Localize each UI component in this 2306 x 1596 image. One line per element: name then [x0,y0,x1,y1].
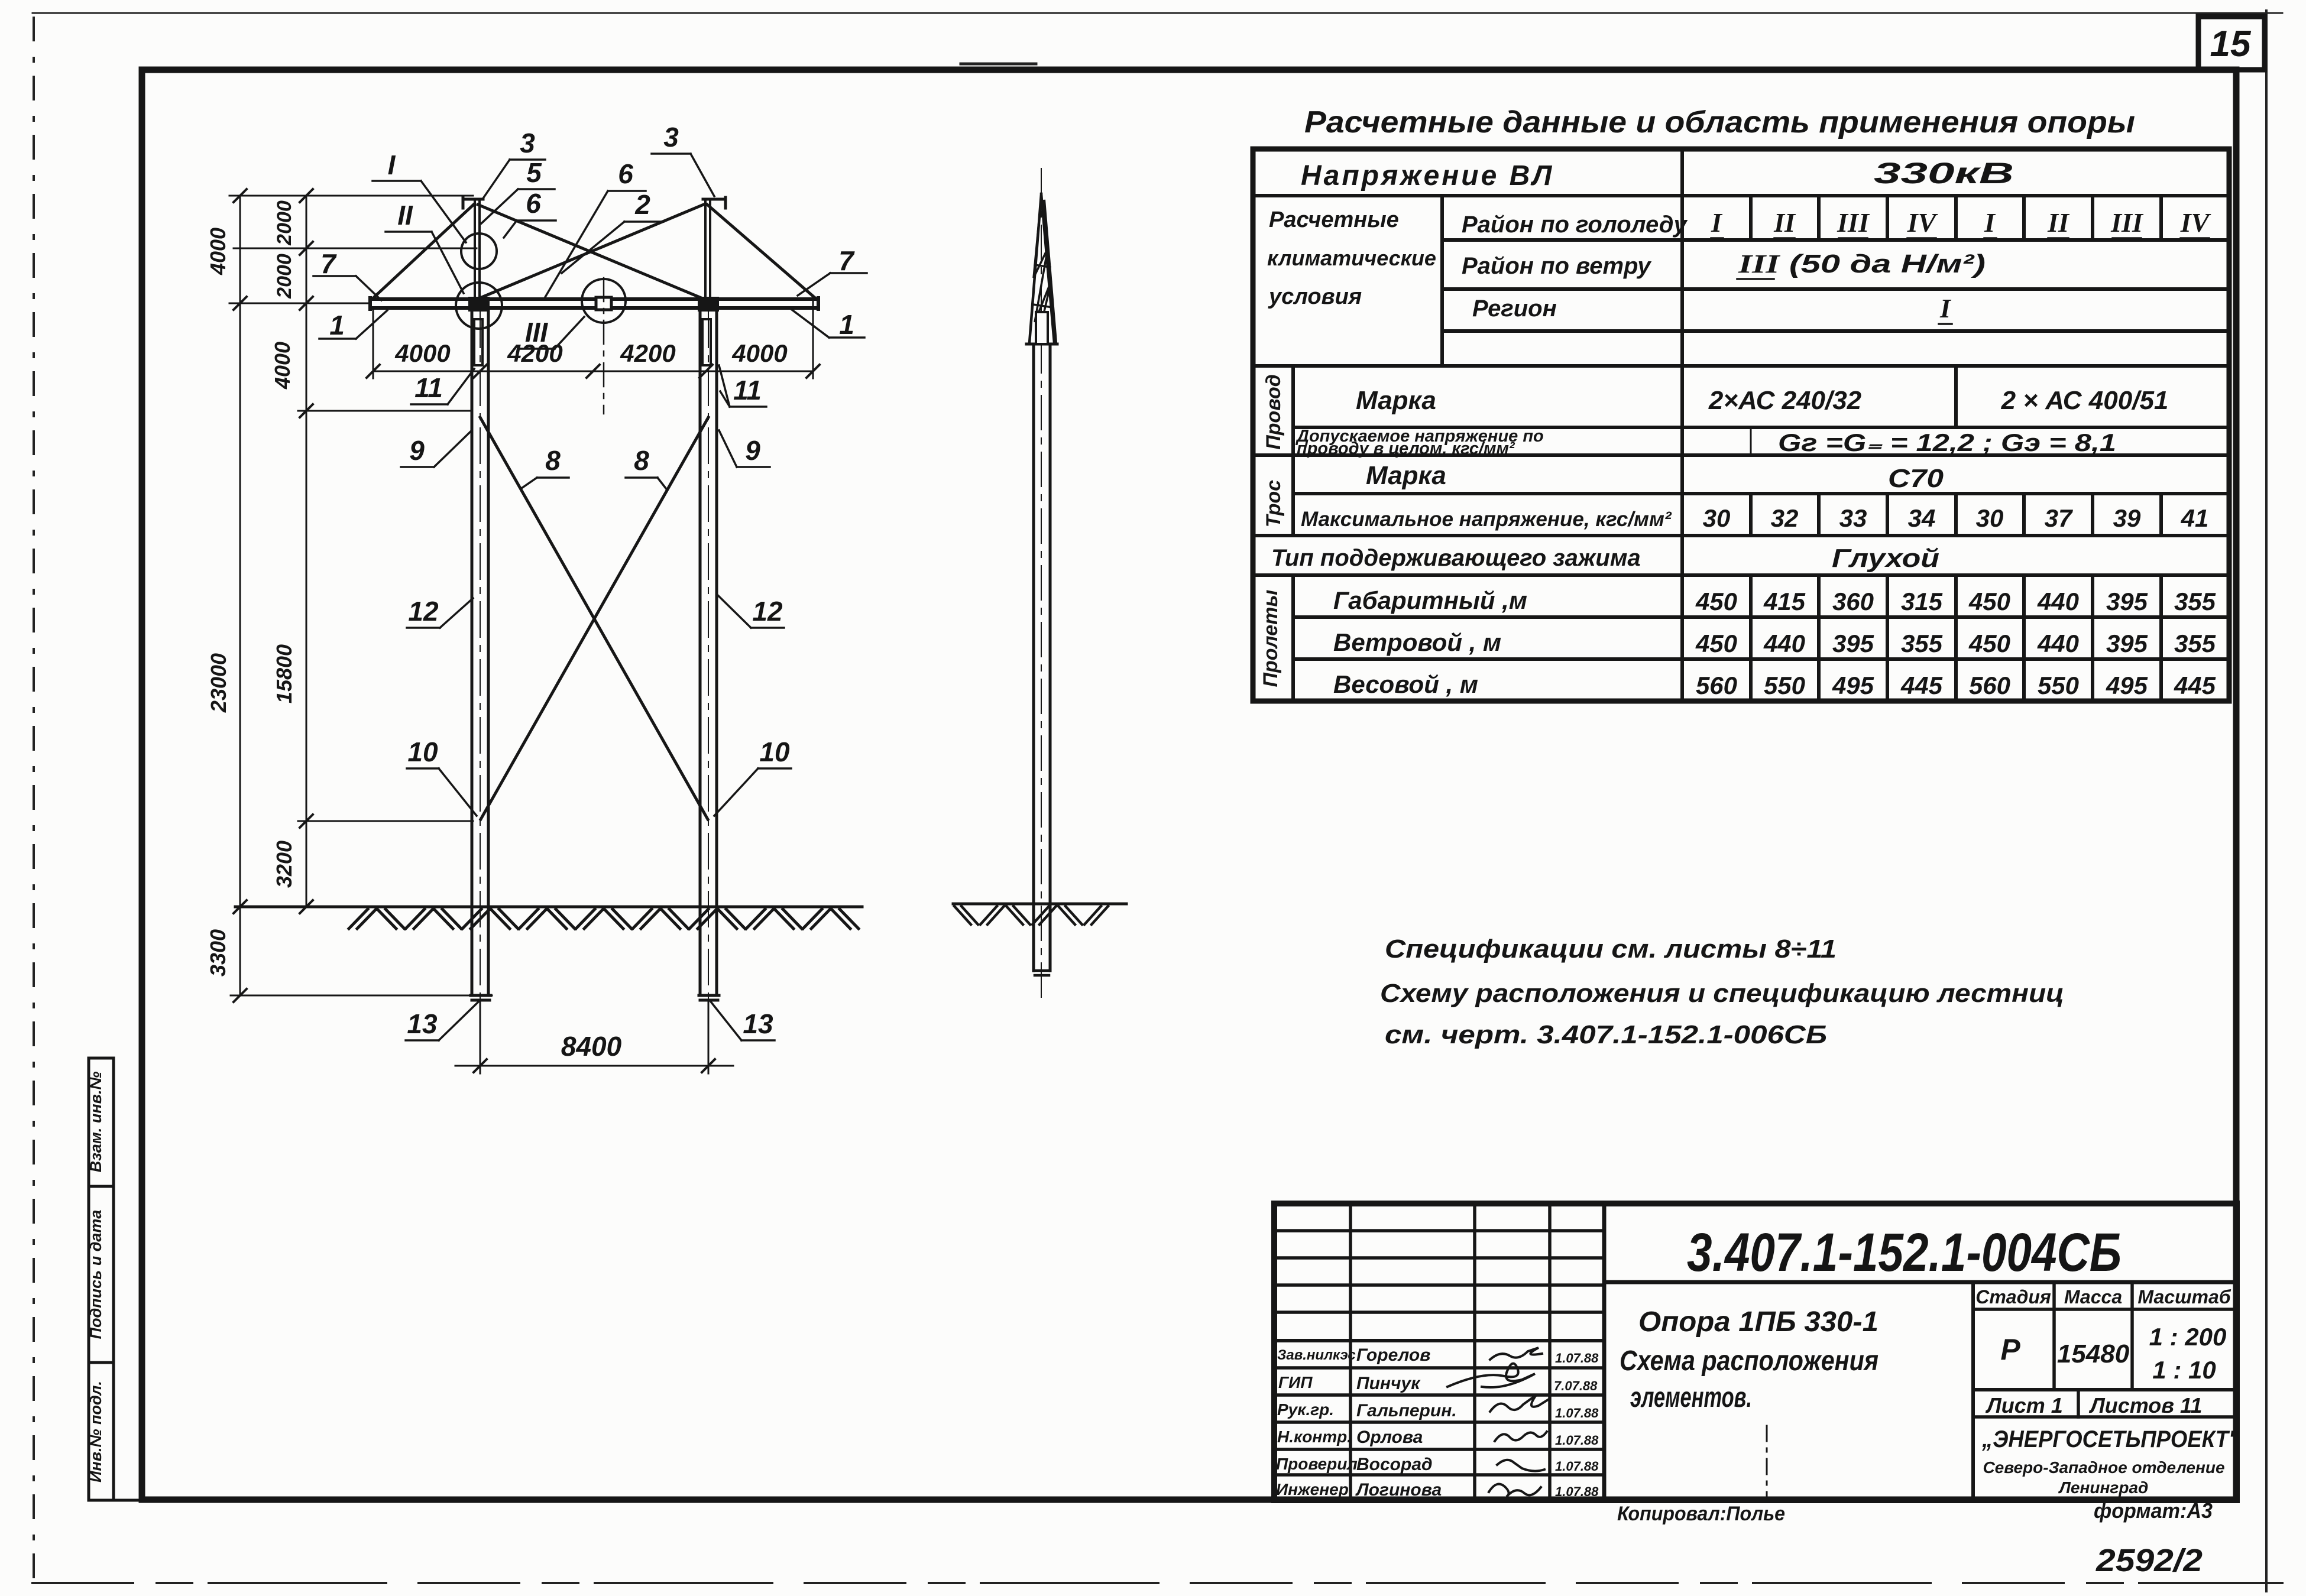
svg-text:1.07.88: 1.07.88 [1555,1406,1599,1420]
svg-text:4000: 4000 [270,342,294,390]
svg-text:315: 315 [1901,588,1943,615]
svg-text:Инженер: Инженер [1276,1480,1349,1498]
svg-text:Пинчук: Пинчук [1356,1374,1421,1393]
svg-text:550: 550 [2038,672,2079,699]
svg-text:Взам. инв.№: Взам. инв.№ [87,1072,105,1173]
svg-text:34: 34 [1908,504,1936,532]
svg-text:Район по гололеду: Район по гололеду [1462,212,1688,238]
svg-text:4000: 4000 [731,339,787,367]
svg-text:495: 495 [2106,672,2148,699]
svg-text:климатические: климатические [1267,246,1436,270]
svg-text:30: 30 [1976,504,2004,532]
svg-text:9: 9 [745,435,760,466]
svg-text:Подпись и дата: Подпись и дата [87,1210,105,1339]
svg-text:Расчетные данные и область: Расчетные данные и область применения оп… [1304,105,2135,140]
svg-text:15480: 15480 [2057,1339,2130,1368]
svg-text:III: III [525,317,549,348]
svg-text:355: 355 [2174,630,2216,657]
svg-text:3200: 3200 [272,841,296,888]
svg-text:440: 440 [2037,630,2079,657]
svg-text:Проверил: Проверил [1276,1455,1358,1473]
svg-text:355: 355 [2174,588,2216,615]
svg-text:Зав.нилкэс: Зав.нилкэс [1277,1347,1356,1363]
svg-text:395: 395 [2106,630,2148,657]
svg-text:формат:А3: формат:А3 [2094,1498,2213,1523]
svg-text:1.07.88: 1.07.88 [1555,1433,1599,1448]
svg-text:11: 11 [733,375,762,406]
svg-text:33: 33 [1839,504,1867,532]
svg-text:360: 360 [1832,588,1874,615]
svg-text:2: 2 [634,189,650,220]
svg-text:415: 415 [1763,588,1806,615]
svg-text:Марка: Марка [1366,461,1446,490]
svg-text:Копировал:Полье: Копировал:Полье [1617,1503,1785,1525]
svg-text:I: I [388,150,396,180]
svg-text:Провод: Провод [1262,374,1285,449]
svg-text:11: 11 [414,372,443,403]
svg-text:2000: 2000 [273,200,296,246]
svg-text:III: III [2110,207,2144,238]
svg-text:I: I [1711,207,1723,238]
svg-text:см. черт. 3.407.1-152.1-006СБ: см. черт. 3.407.1-152.1-006СБ [1385,1020,1827,1049]
svg-text:1: 1 [329,310,345,340]
svg-text:440: 440 [2037,588,2079,615]
svg-text:445: 445 [1900,672,1943,699]
svg-text:450: 450 [1695,630,1737,657]
svg-text:Р: Р [2000,1333,2020,1366]
svg-text:7.07.88: 7.07.88 [1554,1378,1598,1393]
svg-text:6: 6 [526,188,541,219]
svg-text:элементов.: элементов. [1630,1382,1752,1413]
svg-text:Ленинград: Ленинград [2058,1478,2149,1497]
svg-text:Трос: Трос [1262,480,1285,527]
svg-text:12: 12 [408,596,439,627]
svg-text:8: 8 [634,445,649,476]
svg-text:ГИП: ГИП [1278,1373,1313,1391]
svg-text:3: 3 [520,128,535,158]
svg-text:355: 355 [1901,630,1943,657]
svg-text:39: 39 [2113,504,2141,532]
svg-text:23000: 23000 [206,653,231,713]
svg-text:Ветровой , м: Ветровой , м [1333,628,1501,656]
svg-text:Масштаб: Масштаб [2137,1286,2231,1308]
svg-text:4000: 4000 [394,339,450,367]
svg-text:330кВ: 330кВ [1874,157,2014,190]
svg-text:450: 450 [1968,630,2010,657]
svg-text:I: I [1939,293,1952,323]
svg-text:440: 440 [1763,630,1805,657]
svg-text:Опора 1ПБ 330-1: Опора 1ПБ 330-1 [1638,1306,1879,1338]
svg-text:Инв.№ подл.: Инв.№ подл. [87,1381,105,1483]
svg-text:Масса: Масса [2064,1286,2122,1308]
svg-text:Северо-Западное отделение: Северо-Западное отделение [1983,1458,2224,1477]
svg-text:Район по ветру: Район по ветру [1462,253,1651,279]
svg-text:Gг =G₌ = 12,2 ; Gэ = 8,1: Gг =G₌ = 12,2 ; Gэ = 8,1 [1778,429,2116,456]
svg-text:395: 395 [2106,588,2148,615]
svg-text:Логинова: Логинова [1355,1480,1442,1500]
svg-text:7: 7 [320,248,337,279]
svg-text:15800: 15800 [272,644,296,703]
svg-text:5: 5 [526,157,542,188]
svg-text:495: 495 [1832,672,1874,699]
svg-text:2592/2: 2592/2 [2096,1543,2203,1578]
svg-text:1.07.88: 1.07.88 [1555,1351,1599,1365]
svg-text:4200: 4200 [620,339,675,367]
svg-text:560: 560 [1969,672,2010,699]
svg-text:Спецификации см. листы 8÷11: Спецификации см. листы 8÷11 [1385,935,1837,964]
svg-text:Весовой , м: Весовой , м [1333,670,1478,698]
svg-text:3.407.1-152.1-004СБ: 3.407.1-152.1-004СБ [1687,1222,2122,1283]
svg-text:37: 37 [2045,504,2073,532]
svg-text:Рук.гр.: Рук.гр. [1277,1400,1334,1419]
svg-text:560: 560 [1696,672,1737,699]
svg-text:12: 12 [752,596,783,627]
svg-text:Глухой: Глухой [1832,544,1939,573]
svg-text:С70: С70 [1888,464,1944,493]
svg-text:II: II [1773,207,1796,238]
svg-text:условия: условия [1268,284,1362,309]
svg-text:Орлова: Орлова [1356,1428,1423,1447]
svg-text:1.07.88: 1.07.88 [1555,1459,1599,1474]
svg-text:395: 395 [1832,630,1874,657]
svg-text:II: II [2047,207,2070,238]
svg-text:2×АС 240/32: 2×АС 240/32 [1708,386,1862,415]
svg-text:6: 6 [618,158,633,189]
svg-text:1.07.88: 1.07.88 [1555,1484,1599,1499]
svg-text:1 : 10: 1 : 10 [2152,1356,2216,1384]
svg-text:450: 450 [1968,588,2010,615]
svg-text:9: 9 [409,435,425,466]
svg-text:„ЭНЕРГОСЕТЬПРОЕКТ": „ЭНЕРГОСЕТЬПРОЕКТ" [1981,1426,2239,1452]
svg-text:Марка: Марка [1356,386,1436,415]
svg-text:Максимальное напряжение, кгс/м: Максимальное напряжение, кгс/мм² [1301,508,1672,531]
svg-text:10: 10 [759,737,790,767]
svg-text:13: 13 [407,1008,438,1039]
svg-text:41: 41 [2181,504,2209,532]
svg-text:Расчетные: Расчетные [1269,207,1399,232]
svg-text:I: I [1984,207,1996,238]
svg-text:1: 1 [839,309,854,340]
svg-text:3300: 3300 [206,929,230,977]
svg-text:450: 450 [1695,588,1737,615]
svg-text:III: III [1837,207,1870,238]
svg-text:Пролеты: Пролеты [1259,590,1282,687]
svg-text:2000: 2000 [273,254,296,299]
svg-text:8400: 8400 [561,1031,622,1062]
svg-text:3: 3 [663,122,679,153]
svg-text:Лист 1: Лист 1 [1985,1393,2063,1417]
svg-text:Схема расположения: Схема расположения [1620,1345,1879,1377]
svg-text:Гальперин.: Гальперин. [1356,1401,1457,1420]
svg-text:проводу в целом, кгс/мм²: проводу в целом, кгс/мм² [1297,439,1515,458]
svg-text:Н.контр.: Н.контр. [1277,1428,1352,1446]
svg-text:30: 30 [1703,504,1731,532]
svg-text:Стадия: Стадия [1975,1286,2051,1308]
svg-text:Габаритный ,м: Габаритный ,м [1333,586,1527,614]
svg-text:2 × АС 400/51: 2 × АС 400/51 [2001,386,2169,415]
svg-text:7: 7 [838,245,855,276]
svg-text:Регион: Регион [1472,296,1557,322]
svg-text:IV: IV [2180,207,2211,238]
svg-text:Тип поддерживающего зажима: Тип поддерживающего зажима [1271,545,1641,571]
svg-text:1 : 200: 1 : 200 [2149,1323,2227,1351]
svg-text:8: 8 [545,445,561,476]
svg-text:13: 13 [743,1008,773,1039]
svg-text:IV: IV [1907,207,1938,238]
svg-text:Листов 11: Листов 11 [2088,1393,2202,1417]
svg-text:10: 10 [407,737,438,767]
svg-text:4000: 4000 [206,228,230,275]
svg-text:Восорад: Восорад [1356,1455,1433,1474]
svg-text:Горелов: Горелов [1356,1345,1430,1365]
svg-text:15: 15 [2210,24,2252,64]
svg-text:550: 550 [1764,672,1805,699]
svg-text:445: 445 [2174,672,2216,699]
svg-text:Схему расположения и специфи: Схему расположения и спецификацию лестни… [1380,979,2064,1008]
svg-text:Напряжение ВЛ: Напряжение ВЛ [1301,160,1554,192]
svg-text:32: 32 [1771,504,1799,532]
svg-text:III (50 да Н/м²): III (50 да Н/м²) [1738,249,1986,278]
svg-text:II: II [397,200,413,231]
